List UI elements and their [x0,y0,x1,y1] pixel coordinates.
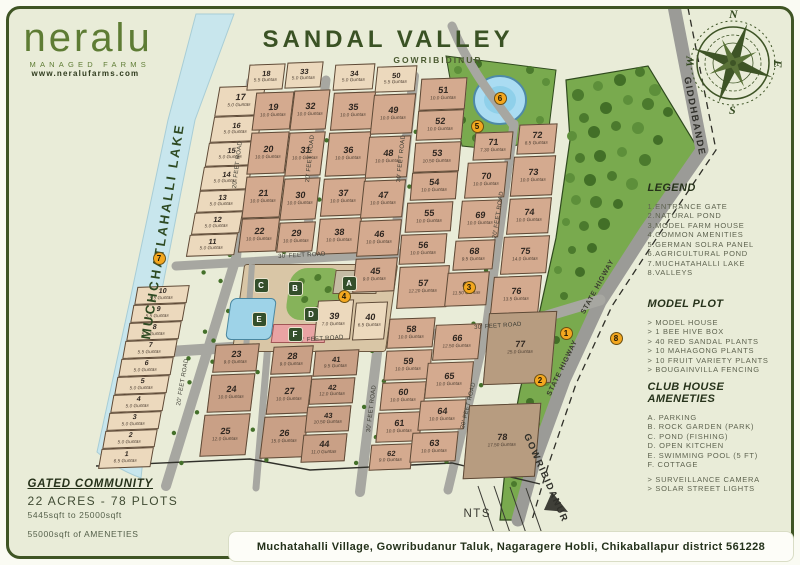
club-house-item: E. SWIMMING POOL (5 FT) [648,451,790,461]
map-world: 16.5 Guntas25.0 Guntas35.0 Guntas45.0 Gu… [6,6,794,559]
club-house-item: C. POND (FISHING) [648,432,790,442]
legend-item: 2.NATURAL POND [648,211,790,221]
model-plot-item: > 10 FRUIT VARIETY PLANTS [648,356,790,366]
compass-w: W [683,55,697,67]
model-plot-item: > MODEL HOUSE [648,318,790,328]
legend-item: 6.AGRICULTURAL POND [648,249,790,259]
logo-name: neralu [24,18,174,58]
model-plot-item: > 10 MAHAGONG PLANTS [648,346,790,356]
summary-block: GATED COMMUNITY 22 ACRES - 78 PLOTS 5445… [28,478,228,539]
legend-item: 3.MODEL FARM HOUSE [648,221,790,231]
amenity-chip-C: C [254,278,269,293]
club-house-list: A. PARKINGB. ROCK GARDEN (PARK)C. POND (… [648,413,790,494]
club-house-heading: CLUB HOUSE AMENETIES [648,381,790,405]
model-plot-heading: MODEL PLOT [648,298,790,310]
model-plot-item: > 1 BEE HIVE BOX [648,327,790,337]
model-plot-item: > 40 RED SANDAL PLANTS [648,337,790,347]
legend-item: 4.COMMON AMENITIES [648,230,790,240]
club-house-item: A. PARKING [648,413,790,423]
club-house-block: CLUB HOUSE AMENETIES A. PARKINGB. ROCK G… [648,381,790,494]
legend-marker-5: 5 [471,120,484,133]
address-text: Muchatahalli Village, Gowribudanur Taluk… [257,541,765,553]
legend-marker-4: 4 [338,290,351,303]
amenity-chip-B: B [288,281,303,296]
club-house-item: B. ROCK GARDEN (PARK) [648,422,790,432]
club-house-item: F. COTTAGE [648,460,790,470]
compass-s: S [729,103,736,116]
logo: neralu MANAGED FARMS www.neralufarms.com [24,18,174,78]
legend-item: 5.GERMAN SOLRA PANEL [648,240,790,250]
club-house-item: > SOLAR STREET LIGHTS [648,484,790,494]
model-plot-list: > MODEL HOUSE> 1 BEE HIVE BOX> 40 RED SA… [648,318,790,375]
legend-marker-7: 7 [153,252,166,265]
nts-label: NTS [464,508,492,520]
legend-heading: LEGEND [648,182,790,194]
model-plot-block: MODEL PLOT > MODEL HOUSE> 1 BEE HIVE BOX… [648,298,790,375]
club-house-item: > SURVEILLANCE CAMERA [648,475,790,485]
compass-rose: N E S W [678,6,788,116]
legend-block: LEGEND 1.ENTRANCE GATE2.NATURAL POND3.MO… [648,182,790,278]
address-bar: Muchatahalli Village, Gowribudanur Taluk… [228,531,794,562]
legend-marker-1: 1 [560,327,573,340]
logo-website: www.neralufarms.com [32,69,174,78]
amenities-sqft: 55000sqft of AMENETIES [28,529,228,539]
legend-marker-8: 8 [610,332,623,345]
sqft-range: 5445sqft to 25000sqft [28,510,228,520]
legend-marker-6: 6 [494,92,507,105]
club-house-item: D. OPEN KITCHEN [648,441,790,451]
amenity-chip-F: F [288,327,303,342]
map-frame: 16.5 Guntas25.0 Guntas35.0 Guntas45.0 Gu… [6,6,794,559]
amenity-chip-E: E [252,312,267,327]
model-plot-item: > BOUGAINVILLA FENCING [648,365,790,375]
compass-n: N [728,7,739,21]
legend-list: 1.ENTRANCE GATE2.NATURAL POND3.MODEL FAR… [648,202,790,278]
legend-item: 1.ENTRANCE GATE [648,202,790,212]
legend-marker-2: 2 [534,374,547,387]
title-main: SANDAL VALLEY [263,26,483,54]
compass-e: E [771,59,785,68]
legend-item: 7.MUCHATAHALLI LAKE [648,259,790,269]
title-sub: GOWRIBIDINUR [263,55,483,65]
gated-community-heading: GATED COMMUNITY [28,478,228,490]
site-plan-canvas: 16.5 Guntas25.0 Guntas35.0 Guntas45.0 Gu… [0,0,800,565]
legend-item: 8.VALLEYS [648,268,790,278]
page-title: SANDAL VALLEY GOWRIBIDINUR [263,26,483,65]
legend-marker-3: 3 [463,281,476,294]
acres-plots: 22 ACRES - 78 PLOTS [28,494,228,508]
amenity-chip-A: A [342,276,357,291]
amenity-chip-D: D [304,307,319,322]
logo-tagline: MANAGED FARMS [30,60,174,69]
